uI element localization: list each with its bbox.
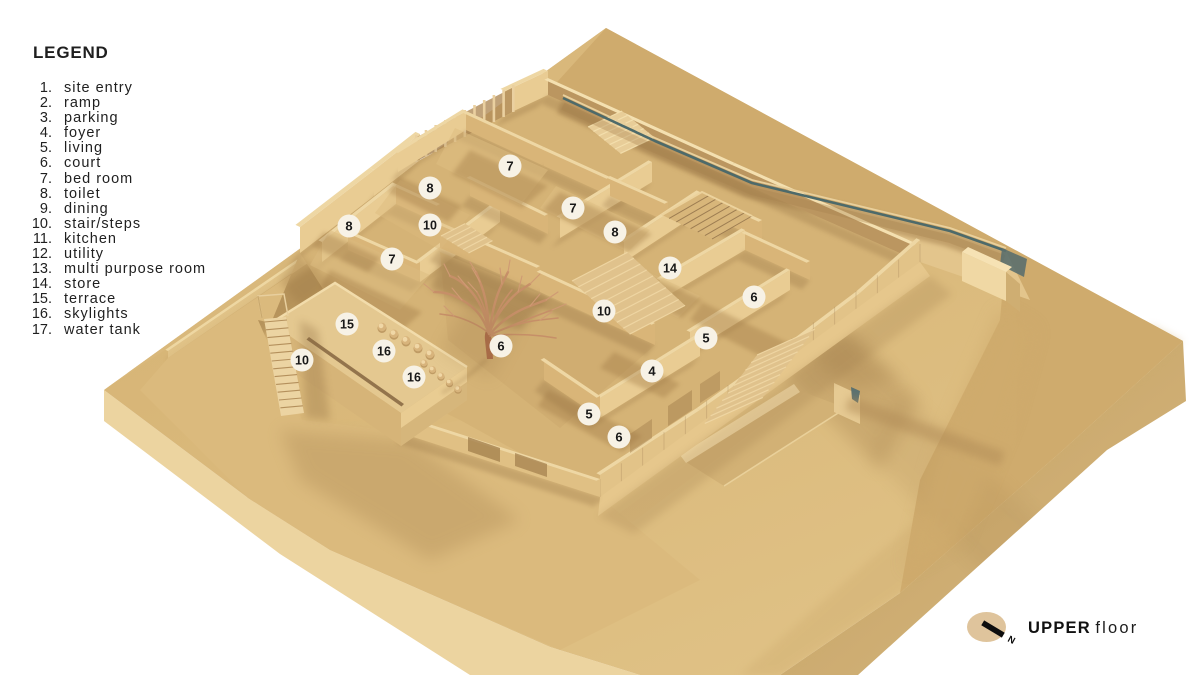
- svg-text:7: 7: [569, 200, 576, 215]
- svg-text:16: 16: [407, 370, 421, 384]
- svg-text:6: 6: [615, 429, 622, 444]
- svg-text:10: 10: [597, 304, 611, 318]
- svg-text:6: 6: [497, 338, 504, 353]
- svg-text:16: 16: [377, 344, 391, 358]
- svg-text:7: 7: [506, 158, 513, 173]
- svg-text:15: 15: [340, 317, 354, 331]
- svg-text:8: 8: [611, 224, 618, 239]
- svg-text:10: 10: [295, 353, 309, 367]
- svg-text:7: 7: [388, 251, 395, 266]
- svg-text:N: N: [1006, 634, 1017, 647]
- svg-text:10: 10: [423, 218, 437, 232]
- svg-text:4: 4: [648, 363, 656, 378]
- svg-text:6: 6: [750, 289, 757, 304]
- svg-text:8: 8: [345, 218, 352, 233]
- svg-text:14: 14: [663, 261, 677, 275]
- svg-text:8: 8: [426, 180, 433, 195]
- svg-text:5: 5: [585, 406, 592, 421]
- svg-text:5: 5: [702, 330, 709, 345]
